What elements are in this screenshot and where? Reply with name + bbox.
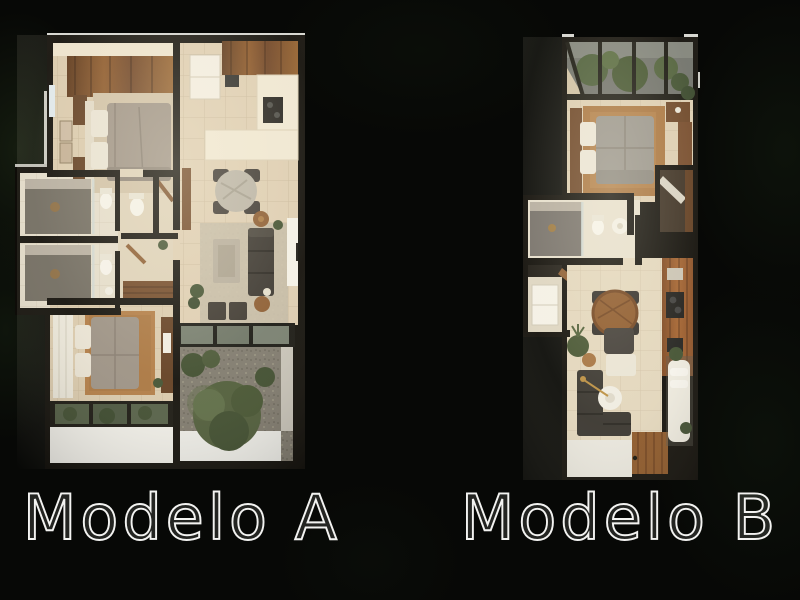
modelo-b-label-block: Modelo B bbox=[455, 482, 785, 560]
floor-plan-modelo-b bbox=[480, 30, 720, 480]
floor-plan-modelo-a bbox=[15, 33, 335, 483]
plan-b-lighting bbox=[523, 37, 698, 480]
poster-canvas: Modelo A Modelo B bbox=[0, 0, 800, 600]
modelo-a-label-block: Modelo A bbox=[10, 482, 355, 560]
plan-a-lighting bbox=[17, 35, 305, 469]
modelo-b-label: Modelo B bbox=[461, 482, 779, 554]
modelo-a-label: Modelo A bbox=[23, 482, 341, 554]
